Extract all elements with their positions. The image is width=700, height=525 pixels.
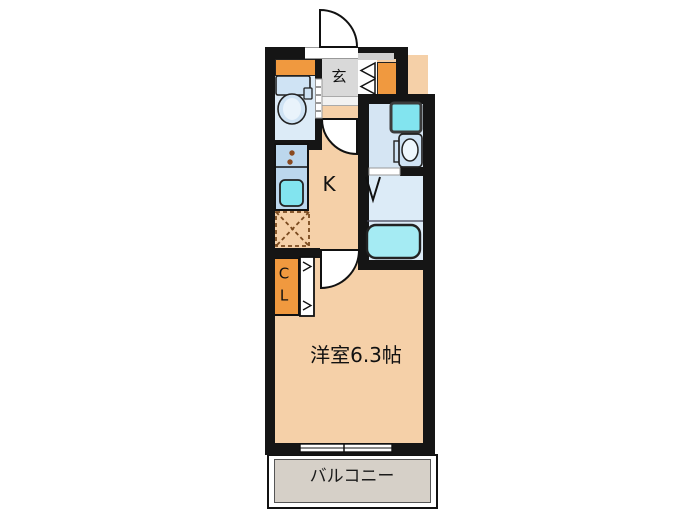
refrigerator-space-icon [276,212,309,246]
closet-label: C L [279,267,289,304]
main-room-label: 洋室6.3帖 [310,345,402,365]
entrance-door-swing-icon [320,10,357,47]
balcony-label: バルコニー [310,469,395,486]
toilet-door-icon [316,79,323,118]
room-door-swing-icon [321,250,359,288]
closet-letter-l: L [279,289,289,304]
sliding-window-icon [300,444,392,452]
bath-folding-door-icon [366,177,380,200]
floor-plan: 玄 K C L 洋室6.3帖 バルコニー [0,0,700,525]
bath-threshold [369,168,400,175]
toilet-icon [276,76,312,124]
hall-door-swing-icon [322,119,357,154]
closet-letter-c: C [279,267,289,282]
folding-door-icon [361,63,375,94]
closet-door-icon [300,257,314,316]
kitchen-label: K [322,174,335,194]
bathtub-icon [367,225,420,258]
entrance-label: 玄 [331,70,346,85]
washing-machine-icon [391,103,421,132]
kitchen-counter-icon [275,144,308,210]
wash-basin-icon [394,134,422,167]
